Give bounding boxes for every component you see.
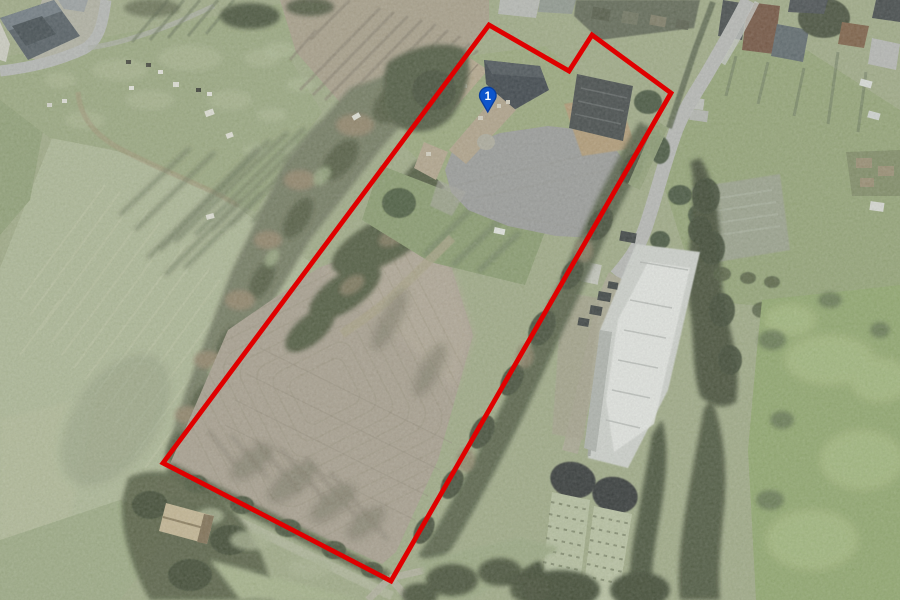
svg-text:1: 1 (485, 91, 492, 103)
